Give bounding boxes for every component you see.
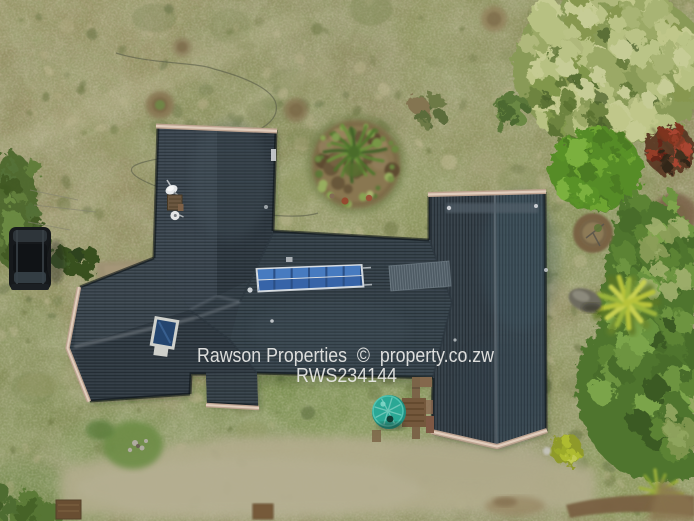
svg-text:RWS234144: RWS234144 <box>296 364 397 387</box>
